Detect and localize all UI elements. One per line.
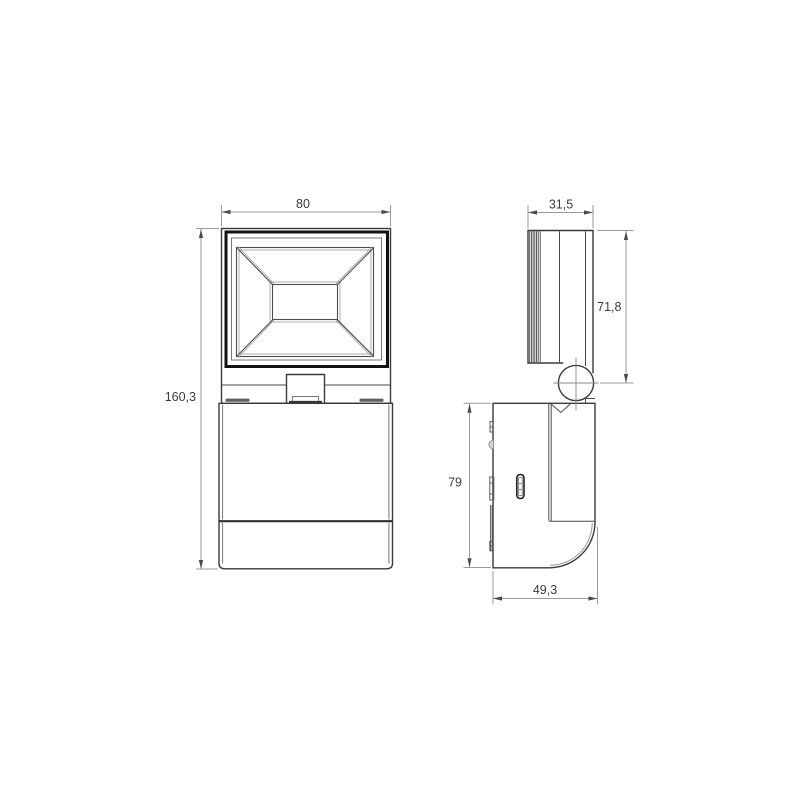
side-view-head [528,231,593,373]
front-view [219,229,393,569]
heatsink-fins [530,231,541,362]
dimension-front-height: 160,3 [165,229,219,570]
dim-label-base-depth: 49,3 [533,583,557,597]
front-sensor-body [219,399,393,569]
dimension-head-depth: 31,5 [528,198,593,229]
dimension-base-height: 79 [448,403,491,567]
dimension-head-height: 71,8 [597,231,634,384]
dimension-front-width: 80 [222,197,391,227]
base-outline [493,403,595,568]
dim-label-base-height: 79 [448,476,462,490]
dim-label-front-width: 80 [296,197,310,211]
side-view-base [489,399,595,568]
drawing-canvas: 80 160,3 31,5 71,8 79 [0,0,800,800]
dim-label-head-height: 71,8 [597,300,621,314]
base-slot [517,475,524,499]
dimension-drawing: 80 160,3 31,5 71,8 79 [0,0,800,800]
front-body-left-tab [226,399,250,402]
front-reflector [237,247,374,357]
dim-label-front-height: 160,3 [165,390,196,404]
front-mounting-neck [287,375,325,404]
hinge-bracket-step [586,399,596,404]
dim-label-head-depth: 31,5 [549,198,573,212]
front-head-housing [222,229,391,404]
front-body-right-tab [360,399,384,402]
